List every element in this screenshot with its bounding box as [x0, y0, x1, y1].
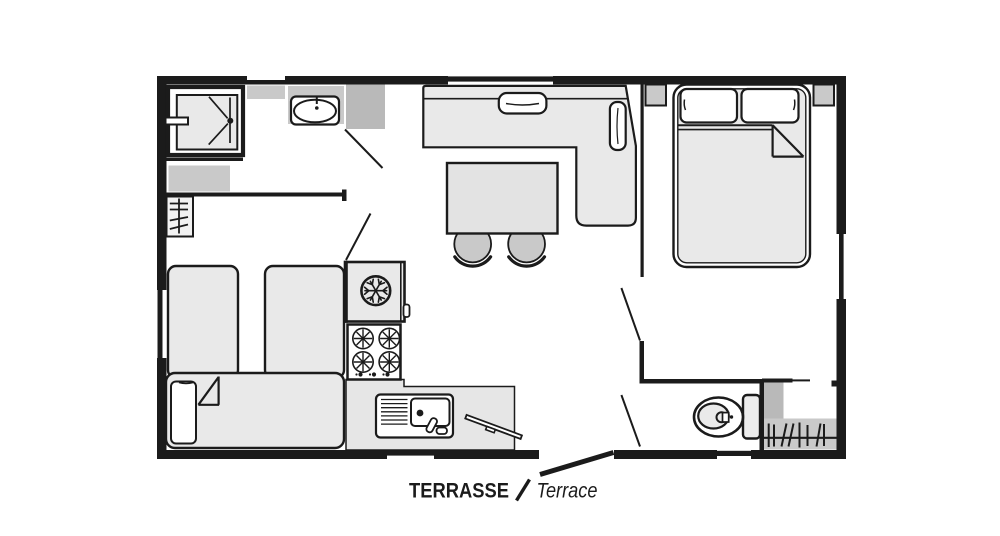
svg-text:Terrace: Terrace: [537, 480, 598, 503]
svg-text:TERRASSE: TERRASSE: [409, 480, 509, 503]
